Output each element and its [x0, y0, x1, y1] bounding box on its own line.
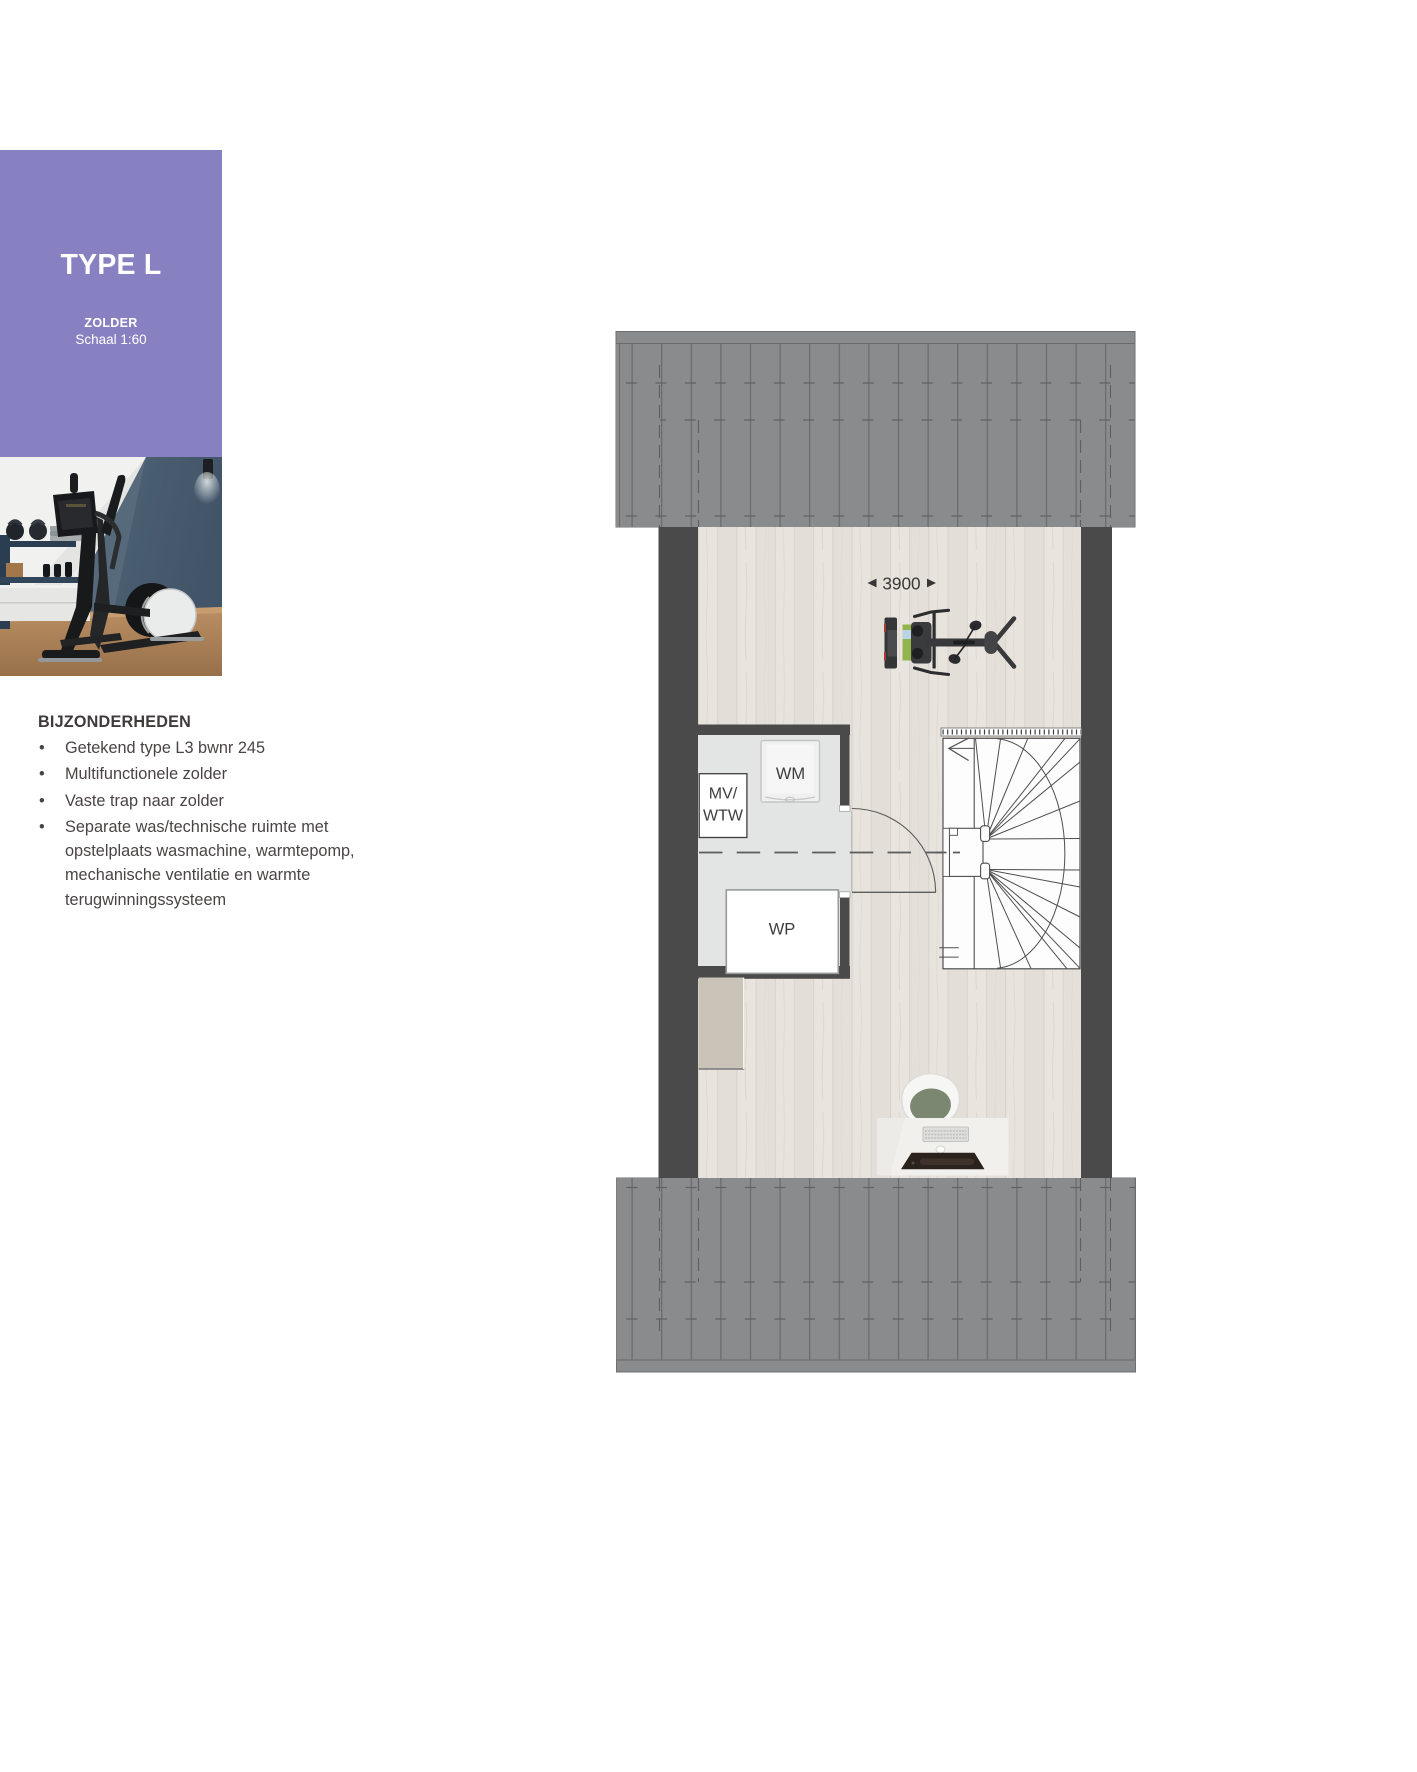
svg-text:3900: 3900	[882, 574, 920, 594]
svg-text:WP: WP	[769, 921, 796, 939]
svg-text:WTW: WTW	[703, 808, 744, 825]
svg-text:MV/: MV/	[709, 786, 738, 803]
svg-text:WM: WM	[776, 765, 805, 783]
